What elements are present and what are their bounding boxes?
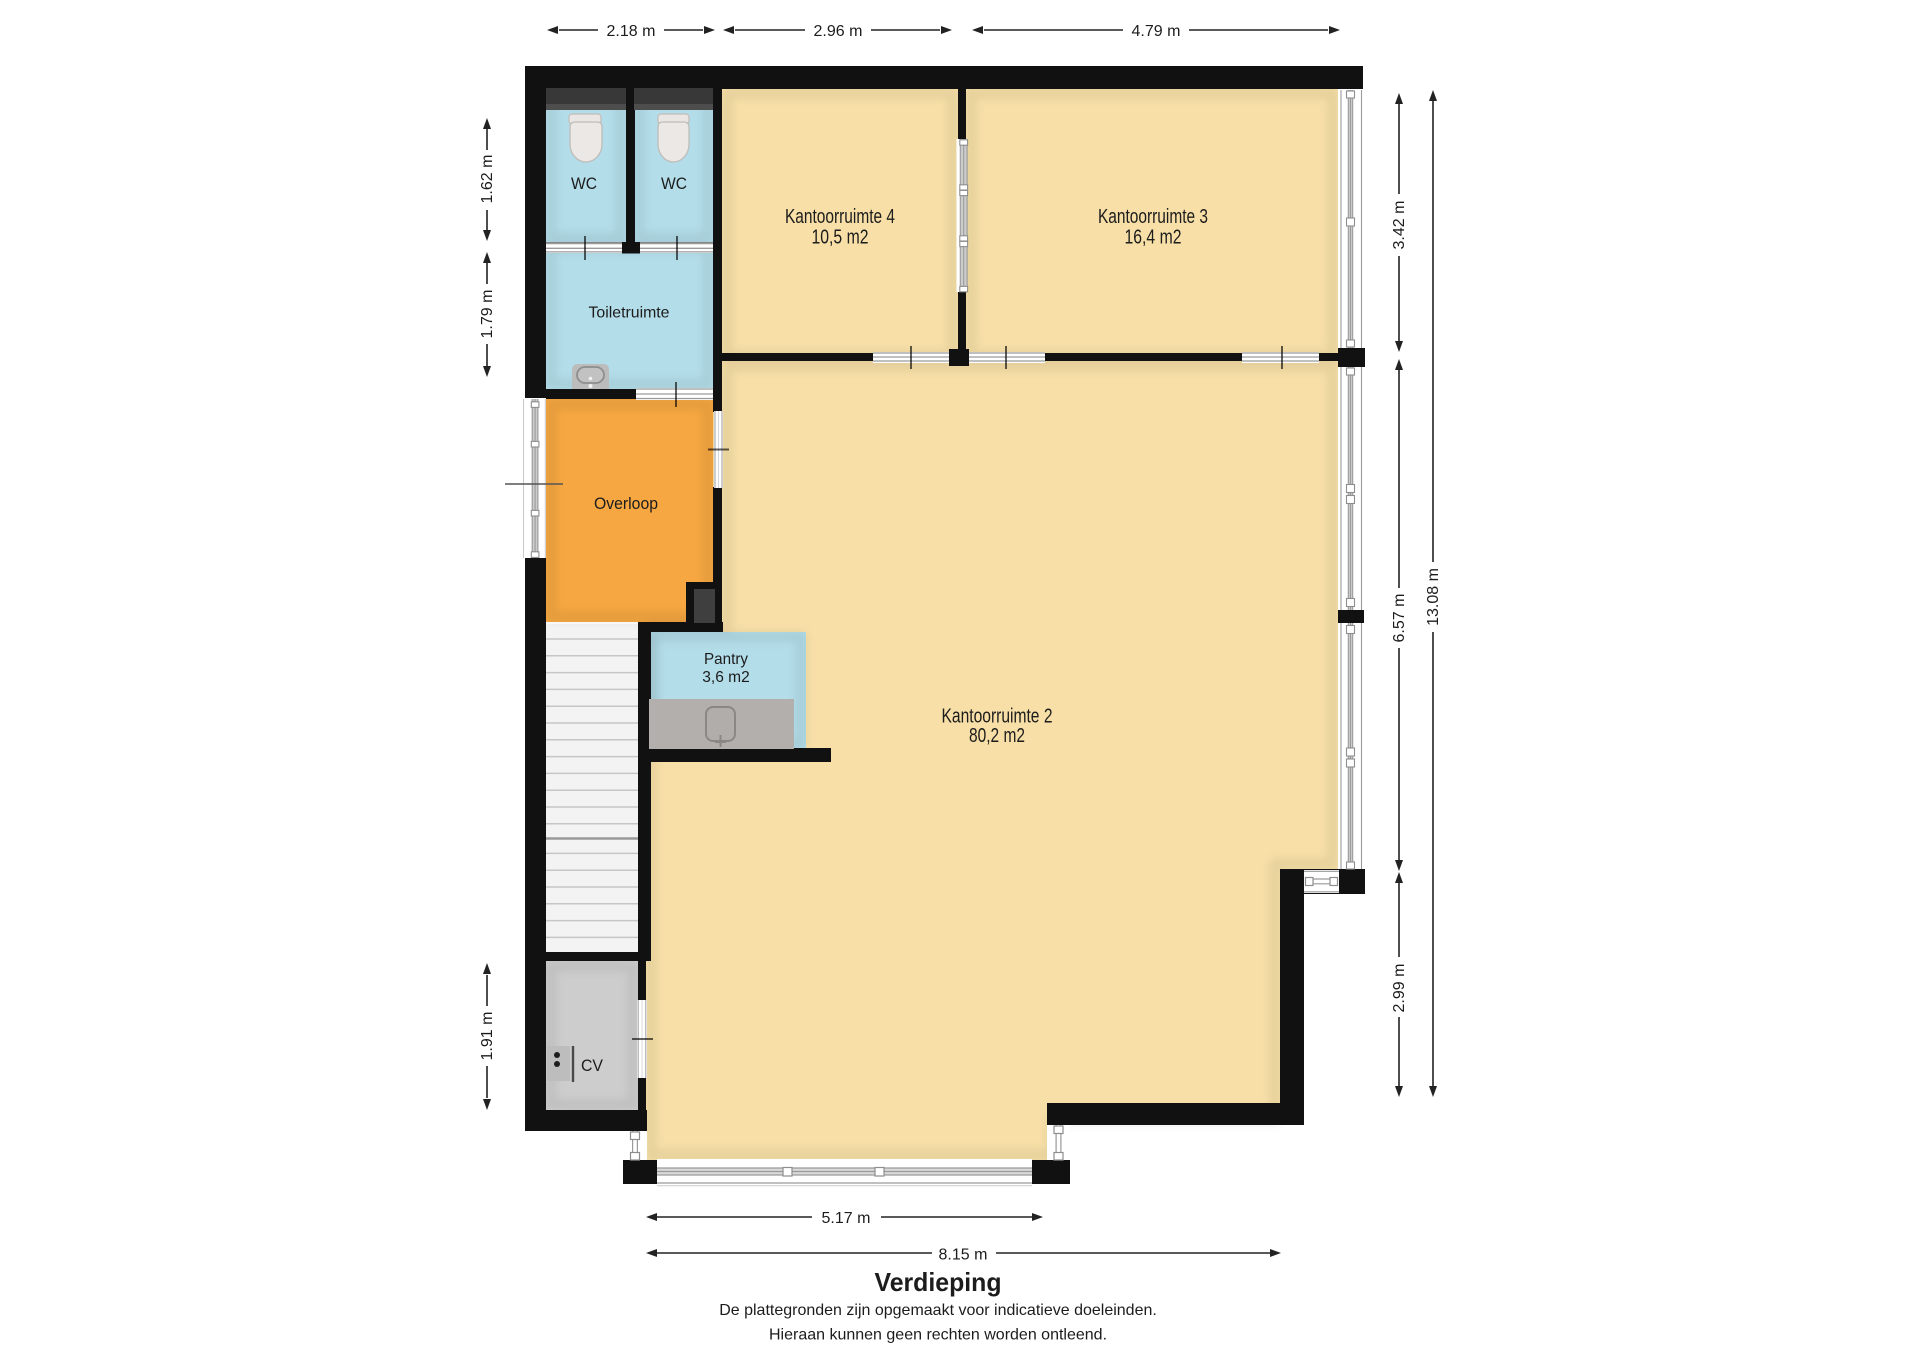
- svg-text:1.91 m: 1.91 m: [479, 1012, 496, 1061]
- svg-text:5.17 m: 5.17 m: [822, 1210, 871, 1227]
- svg-text:2.18 m: 2.18 m: [607, 23, 656, 40]
- svg-text:16,4 m2: 16,4 m2: [1125, 227, 1182, 249]
- svg-text:Toiletruimte: Toiletruimte: [589, 305, 670, 322]
- svg-text:Hieraan kunnen geen rechten wo: Hieraan kunnen geen rechten worden ontle…: [769, 1327, 1107, 1344]
- svg-text:WC: WC: [661, 174, 687, 193]
- svg-text:De plattegronden zijn opgemaak: De plattegronden zijn opgemaakt voor ind…: [719, 1302, 1157, 1319]
- svg-text:10,5 m2: 10,5 m2: [812, 227, 869, 249]
- svg-text:4.79 m: 4.79 m: [1132, 23, 1181, 40]
- svg-text:3.42 m: 3.42 m: [1391, 201, 1408, 250]
- svg-text:Overloop: Overloop: [594, 495, 658, 513]
- svg-text:13.08 m: 13.08 m: [1425, 568, 1442, 626]
- svg-text:8.15 m: 8.15 m: [939, 1247, 988, 1264]
- svg-text:Kantoorruimte 3: Kantoorruimte 3: [1098, 206, 1208, 228]
- svg-text:WC: WC: [571, 174, 597, 193]
- svg-text:3,6 m2: 3,6 m2: [702, 669, 750, 686]
- svg-text:2.96 m: 2.96 m: [814, 23, 863, 40]
- svg-text:6.57 m: 6.57 m: [1391, 594, 1408, 643]
- svg-text:Kantoorruimte 4: Kantoorruimte 4: [785, 206, 895, 228]
- svg-text:1.79 m: 1.79 m: [479, 290, 496, 339]
- svg-text:2.99 m: 2.99 m: [1391, 964, 1408, 1013]
- svg-text:Pantry: Pantry: [704, 651, 748, 668]
- svg-text:80,2 m2: 80,2 m2: [969, 725, 1025, 747]
- svg-text:CV: CV: [581, 1056, 604, 1075]
- svg-text:1.62 m: 1.62 m: [479, 155, 496, 204]
- svg-text:Verdieping: Verdieping: [875, 1267, 1002, 1297]
